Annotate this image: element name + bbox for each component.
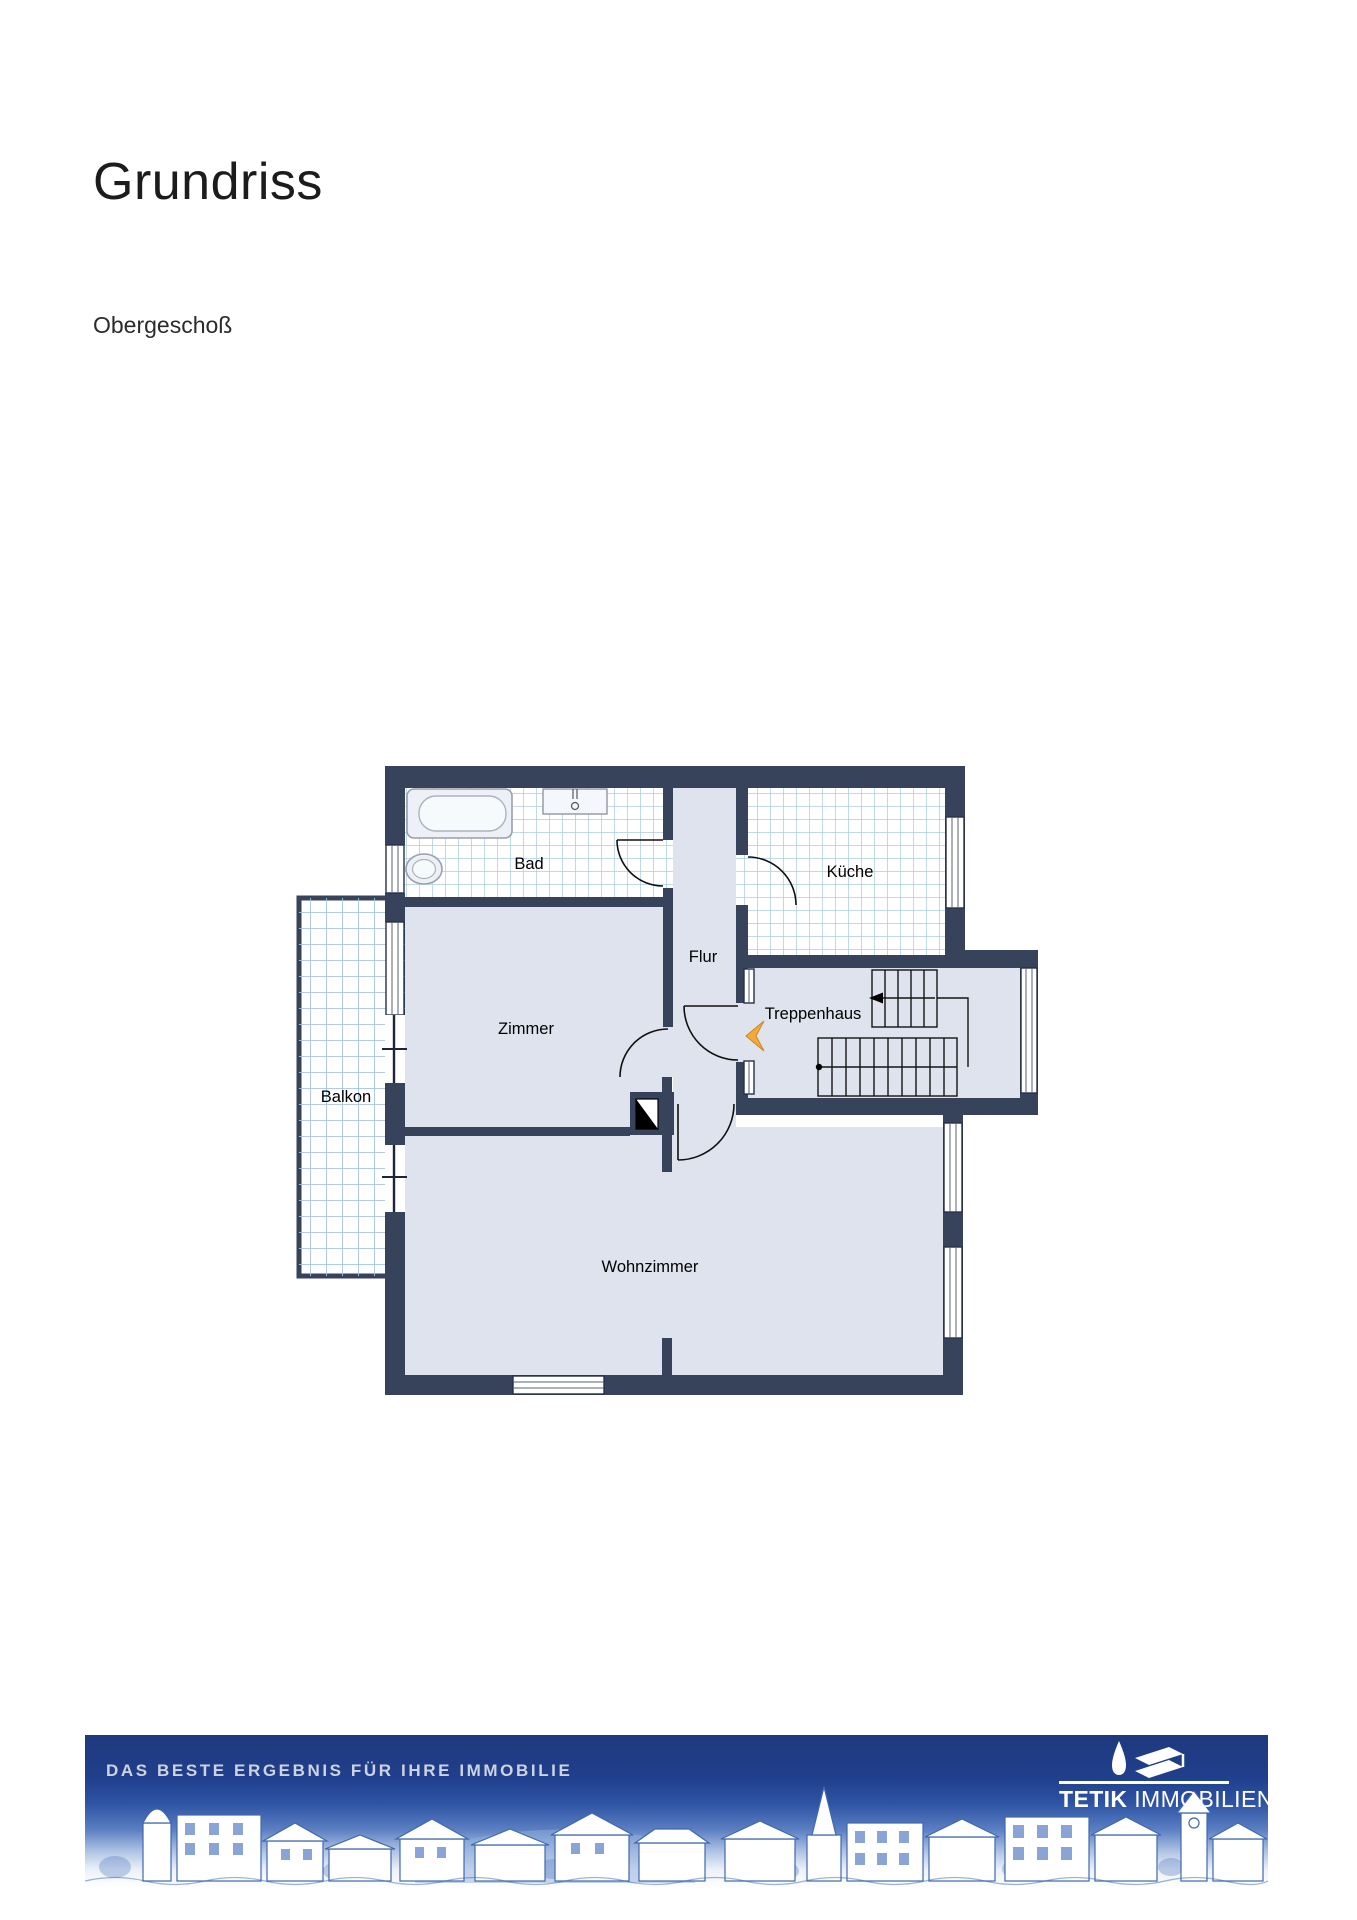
room-label-flur: Flur [689,948,718,966]
window-kueche [946,817,964,908]
room-label-treppenhaus: Treppenhaus [765,1005,862,1023]
window-treppenhaus [1021,968,1037,1093]
page-title: Grundriss [93,152,323,212]
room-label-wohnzimmer: Wohnzimmer [602,1258,699,1276]
footer-banner: DAS BESTE ERGEBNIS FÜR IHRE IMMOBILIE TE… [85,1735,1268,1888]
bathtub [407,789,512,838]
room-label-bad: Bad [514,855,543,873]
brand-logo-icon [1059,1735,1229,1779]
window-wohnzimmer-bottom [513,1376,604,1394]
window-wohnzimmer-2 [944,1247,962,1338]
brand-logo-text: TETIK IMMOBILIEN [1059,1786,1231,1813]
sink [543,789,607,814]
room-label-kueche: Küche [827,863,874,881]
brand-name-bold: TETIK [1059,1786,1127,1812]
window-zimmer [386,922,404,1015]
room-label-zimmer: Zimmer [498,1020,554,1038]
window-wohnzimmer-1 [944,1123,962,1212]
footer-tagline: DAS BESTE ERGEBNIS FÜR IHRE IMMOBILIE [106,1761,572,1781]
room-label-balkon: Balkon [321,1088,371,1106]
toilet [406,854,442,884]
brand-name-light: IMMOBILIEN [1134,1786,1268,1812]
page: Grundriss Obergeschoß [0,0,1357,1920]
chimney-symbol [636,1099,658,1129]
room-floors [405,788,1020,1375]
window-bad [386,845,404,893]
floor-subtitle: Obergeschoß [93,312,232,339]
brand-logo-rule [1059,1781,1229,1784]
floorplan-drawing: Bad Küche Flur Treppenhaus Zimmer Balkon… [280,740,1070,1420]
